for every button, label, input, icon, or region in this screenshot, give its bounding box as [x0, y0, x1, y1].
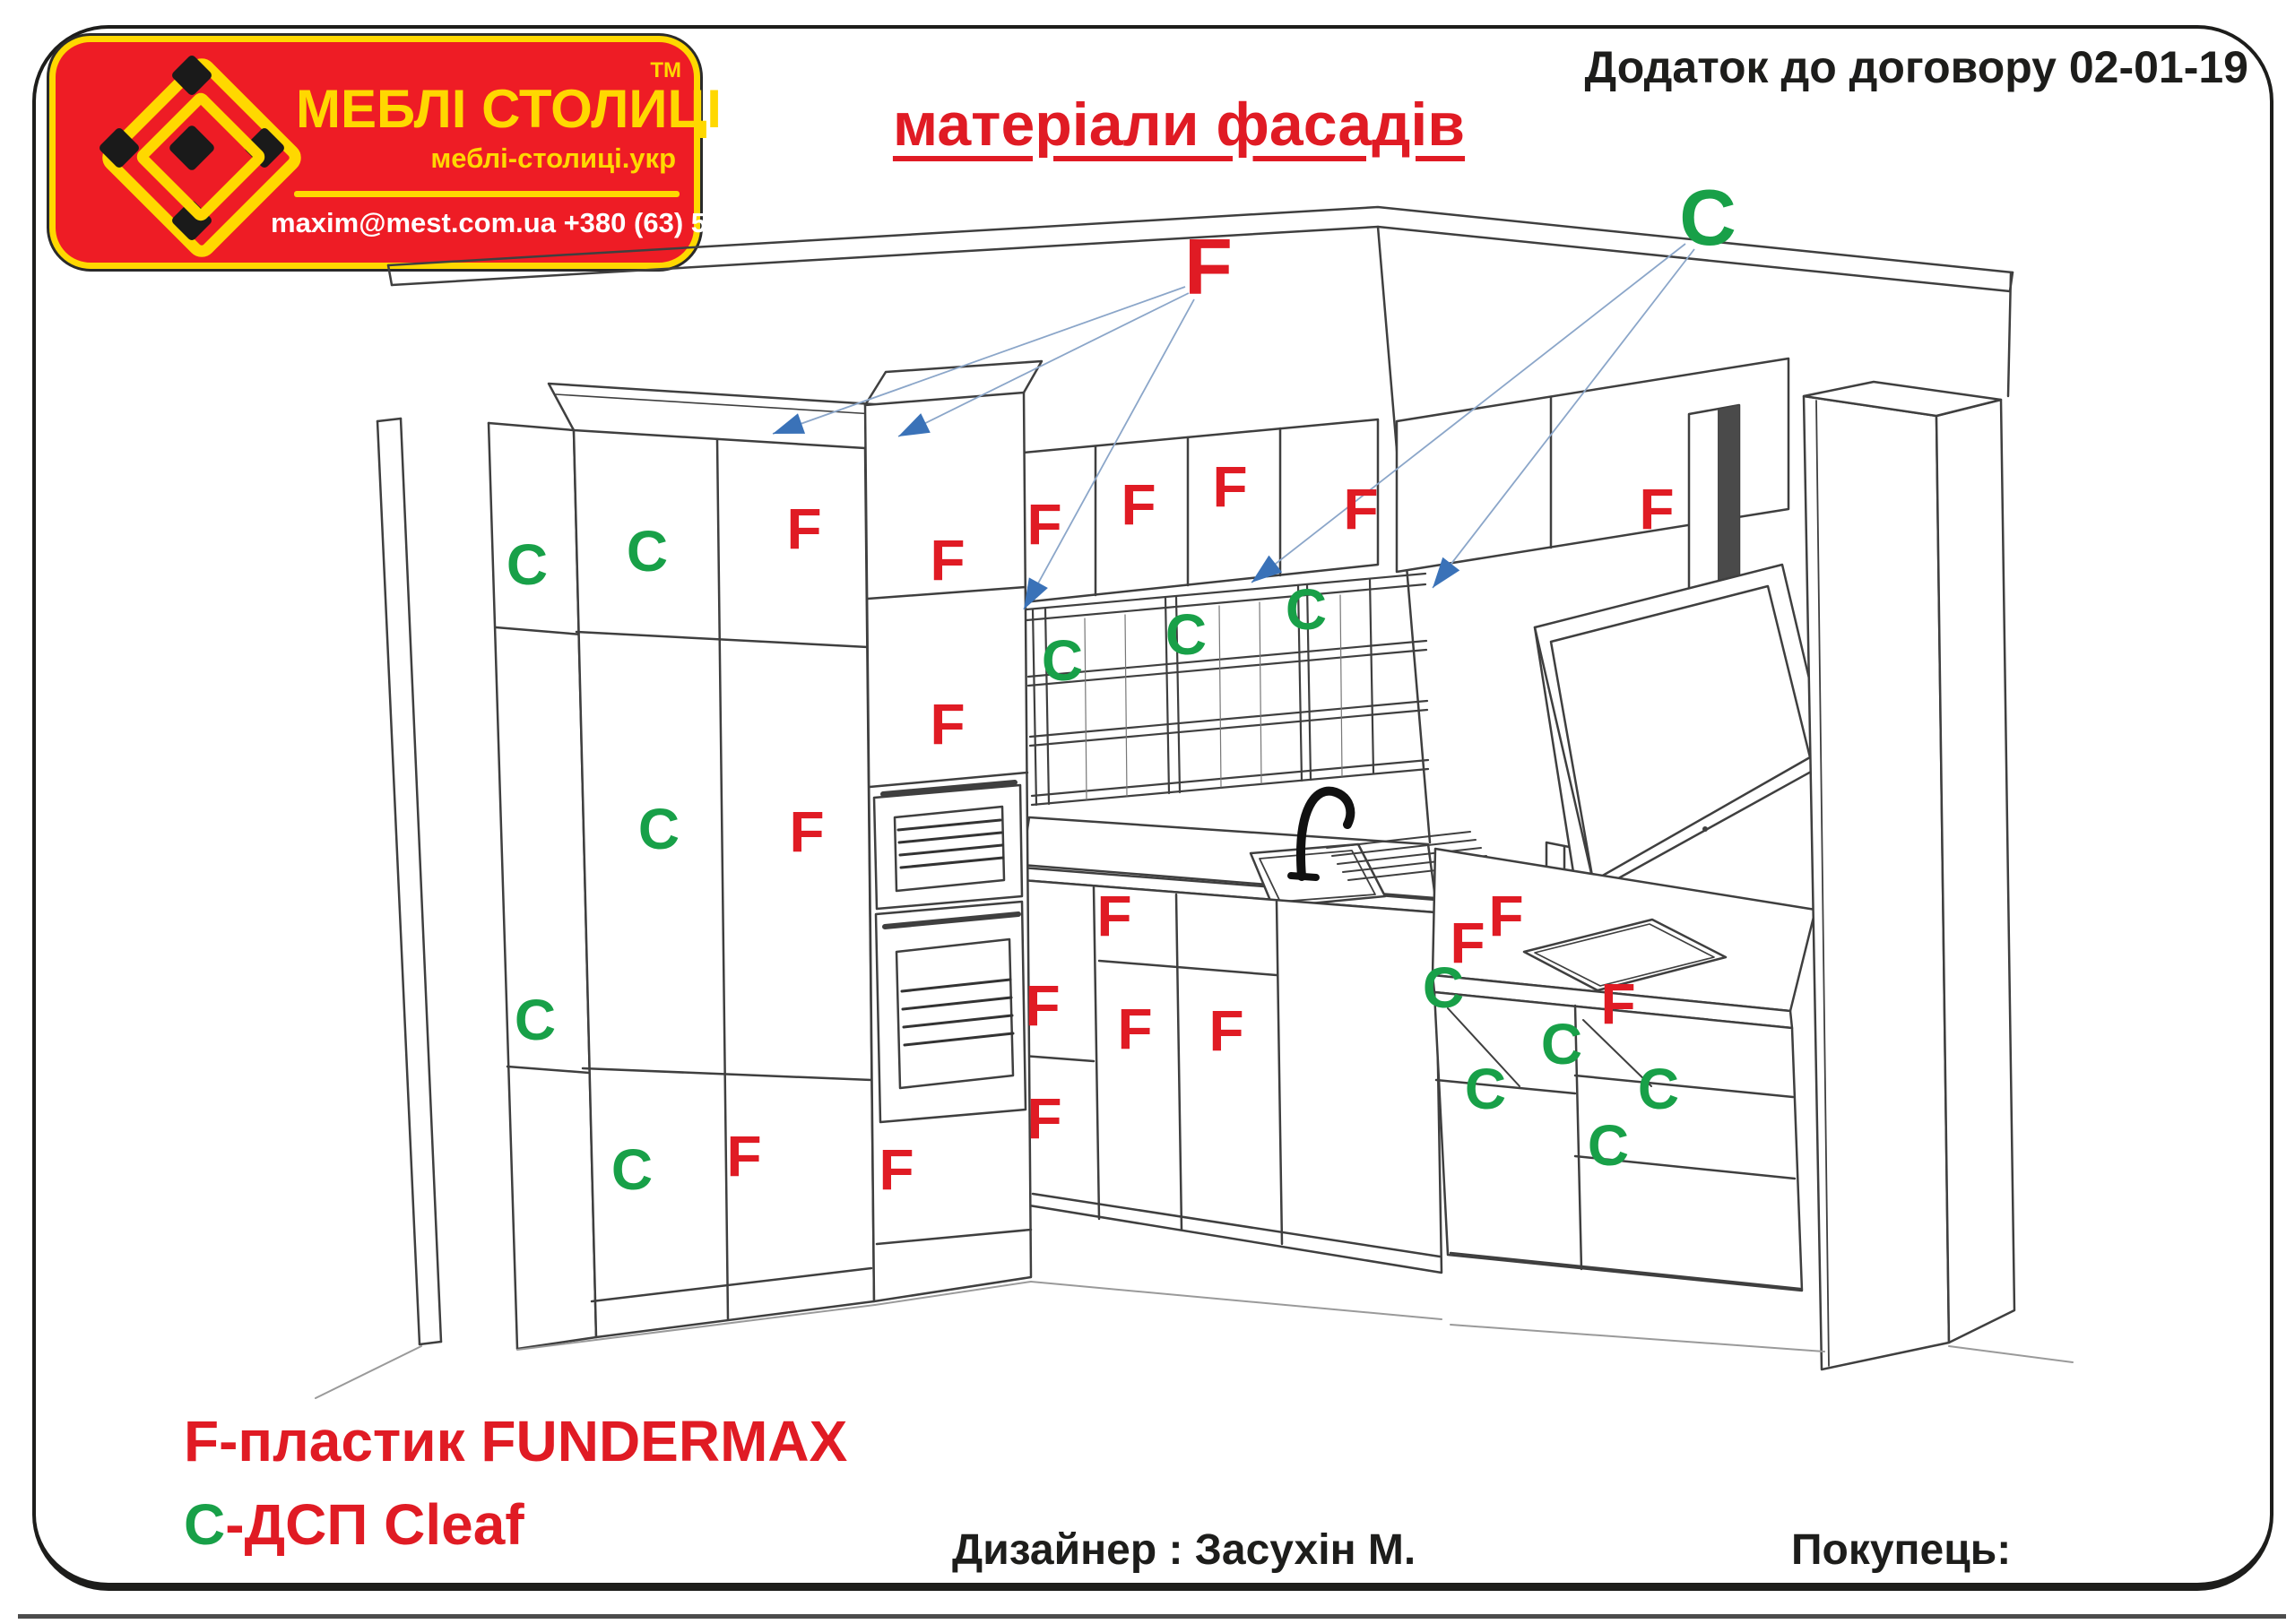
legend-f: F-пластик FUNDERMAX — [184, 1400, 847, 1483]
material-label-f: F — [1488, 887, 1523, 945]
material-labels-layer: FCFFFFFFFFFFFFFFFFFFFCCCCCCCCCCCCC — [0, 0, 2295, 1624]
material-label-c: C — [1541, 1015, 1582, 1073]
material-label-f: F — [1025, 977, 1060, 1034]
buyer-label: Покупець: — [1791, 1525, 2011, 1575]
material-label-f: F — [1121, 476, 1156, 533]
material-label-f: F — [879, 1141, 914, 1198]
material-label-f: F — [930, 531, 965, 589]
material-label-f: F — [726, 1127, 761, 1185]
material-label-c: C — [1286, 581, 1327, 638]
material-label-f: F — [1208, 1002, 1243, 1059]
document-page: МЕБЛІ СТОЛИЦІ ТМ меблі-столиці.укр maxim… — [0, 0, 2295, 1624]
material-label-f: F — [1117, 1000, 1152, 1058]
material-label-f: F — [1343, 480, 1378, 538]
material-label-c: C — [1465, 1060, 1506, 1118]
material-label-c: C — [515, 991, 556, 1049]
material-label-f: F — [1600, 975, 1635, 1032]
f-anchor-label: F — [1184, 228, 1233, 307]
material-label-c: C — [611, 1141, 653, 1198]
material-label-f: F — [789, 803, 824, 860]
material-label-c: C — [1423, 959, 1464, 1016]
material-label-f: F — [1096, 887, 1131, 945]
material-label-f: F — [786, 500, 821, 557]
material-label-c: C — [1165, 606, 1207, 663]
material-label-c: C — [638, 800, 680, 858]
material-label-f: F — [1212, 458, 1247, 515]
material-label-c: C — [627, 523, 668, 580]
material-label-c: C — [1638, 1060, 1679, 1118]
material-label-f: F — [1026, 1090, 1061, 1147]
c-anchor-label: C — [1679, 178, 1736, 257]
material-label-c: C — [507, 536, 548, 593]
designer-name: Дизайнер : Засухін М. — [952, 1525, 1416, 1575]
material-label-f: F — [1026, 496, 1061, 553]
legend-c: C-ДСП Cleaf — [184, 1483, 847, 1567]
material-label-f: F — [1639, 480, 1674, 538]
material-label-c: C — [1042, 632, 1083, 689]
materials-legend: F-пластик FUNDERMAX C-ДСП Cleaf — [184, 1400, 847, 1567]
material-label-c: C — [1588, 1117, 1629, 1174]
material-label-f: F — [930, 695, 965, 753]
